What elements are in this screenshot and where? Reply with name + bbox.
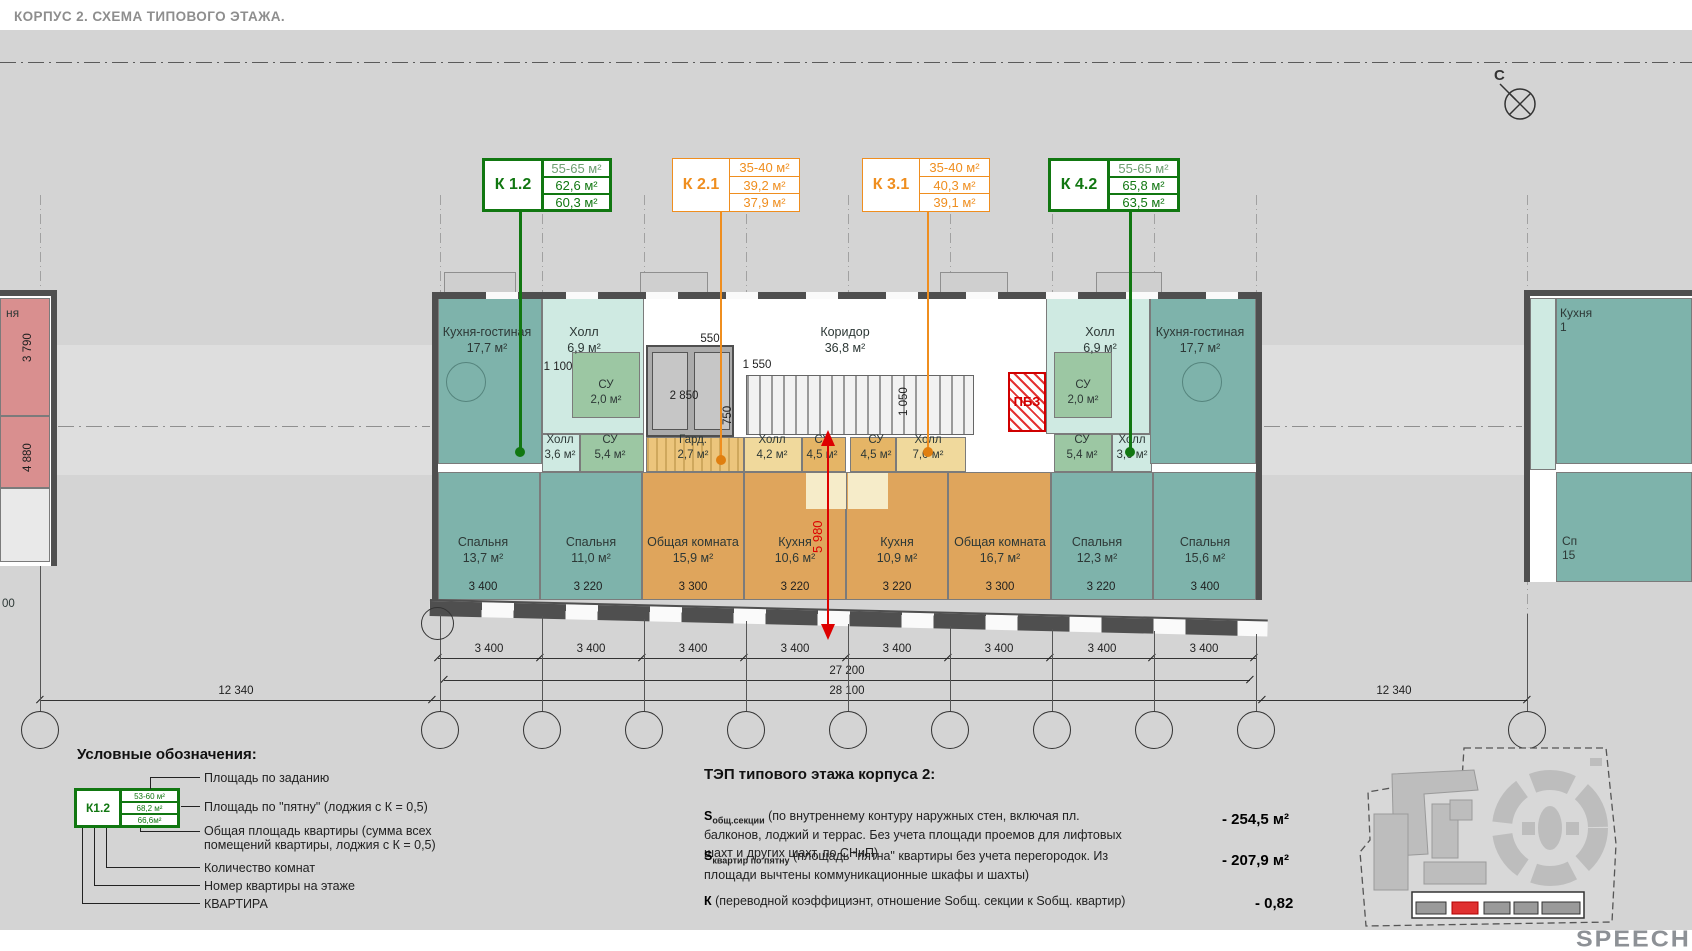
legend-connector bbox=[150, 777, 200, 778]
leader-dot-k21 bbox=[716, 455, 726, 465]
dim-room-width: 3 220 bbox=[883, 581, 912, 593]
apartment-tag-k21: К 2.1 35-40 м² 39,2 м² 37,9 м² bbox=[672, 158, 800, 212]
dim-hall-door: 1 100 bbox=[544, 361, 573, 373]
north-label: С bbox=[1494, 67, 1505, 84]
grid-connector bbox=[848, 624, 849, 711]
room-label: СУ5,4 м² bbox=[1067, 433, 1098, 463]
partial-room-label: ня bbox=[6, 306, 19, 320]
leader-dot-k31 bbox=[923, 447, 933, 457]
top-facade-windows bbox=[438, 292, 1256, 299]
room-label: СУ2,0 м² bbox=[1068, 378, 1099, 408]
room-label: Общая комната16,7 м² bbox=[954, 534, 1046, 567]
room-label: СУ2,0 м² bbox=[591, 378, 622, 408]
grid-connector bbox=[542, 616, 543, 711]
tep-heading: ТЭП типового этажа корпуса 2: bbox=[704, 766, 935, 783]
legend-connector bbox=[140, 831, 200, 832]
dim-bay: 3 400 bbox=[1190, 643, 1219, 655]
room-label: Холл3,6 м² bbox=[545, 433, 576, 463]
grid-bubble bbox=[1135, 711, 1173, 749]
balcony bbox=[940, 272, 1008, 294]
leader-k42 bbox=[1129, 212, 1132, 450]
legend-connector bbox=[94, 828, 95, 886]
section-arrow-up bbox=[821, 430, 835, 446]
tep-value: - 0,82 bbox=[1255, 895, 1293, 912]
dimline-total-outer bbox=[432, 700, 1262, 701]
grid-bubble bbox=[829, 711, 867, 749]
section-line bbox=[827, 445, 829, 625]
balcony bbox=[640, 272, 708, 294]
dim-room-width: 3 220 bbox=[781, 581, 810, 593]
dim-left-cut: 00 bbox=[2, 598, 15, 610]
grid-bubble bbox=[1033, 711, 1071, 749]
room-label: Спальня11,0 м² bbox=[566, 534, 616, 567]
dim-lift-depth: 750 bbox=[722, 406, 734, 425]
dim-bay: 3 400 bbox=[679, 643, 708, 655]
speech-logo: SPEECH bbox=[1576, 926, 1691, 951]
dim-total-outer: 28 100 bbox=[829, 685, 864, 697]
drawing-canvas: КОРПУС 2. СХЕМА ТИПОВОГО ЭТАЖА. С bbox=[0, 0, 1692, 951]
legend-connector bbox=[94, 885, 200, 886]
room-label: Кухня10,9 м² bbox=[877, 534, 918, 567]
bottom-margin bbox=[0, 930, 1692, 951]
kitchen-niche bbox=[806, 473, 846, 509]
grid-connector bbox=[1256, 634, 1257, 711]
legend-connector bbox=[150, 777, 151, 789]
dim-lift: 2 850 bbox=[670, 390, 699, 402]
dim-bay: 3 400 bbox=[475, 643, 504, 655]
partial-room-left bbox=[0, 488, 50, 562]
grid-bubble bbox=[931, 711, 969, 749]
tep-value: - 207,9 м² bbox=[1222, 852, 1289, 869]
dim-room-width: 3 300 bbox=[679, 581, 708, 593]
grid-connector bbox=[1527, 614, 1528, 711]
room-label: Общая комната15,9 м² bbox=[647, 534, 739, 567]
room-label: Холл6,9 м² bbox=[567, 324, 601, 357]
leader-dot-k42 bbox=[1125, 447, 1135, 457]
section-arrow-down bbox=[821, 624, 835, 640]
room-label: Спальня12,3 м² bbox=[1072, 534, 1122, 567]
dimline-left-gap bbox=[40, 700, 432, 701]
balcony bbox=[444, 272, 516, 294]
tep-row: Sквартир по пятну (площадь "пятна" кварт… bbox=[704, 848, 1134, 885]
dim-total-inner: 27 200 bbox=[829, 665, 864, 677]
dimline-right-gap bbox=[1262, 700, 1527, 701]
dimline-bays bbox=[438, 658, 1256, 659]
grid-bubble bbox=[1237, 711, 1275, 749]
legend-heading: Условные обозначения: bbox=[77, 746, 257, 763]
dim-room-width: 3 220 bbox=[1087, 581, 1116, 593]
room-label: Холл4,2 м² bbox=[757, 433, 788, 463]
legend-item: КВАРТИРА bbox=[204, 897, 268, 911]
grid-bubble bbox=[21, 711, 59, 749]
dim-tick bbox=[1246, 676, 1254, 684]
legend-item: Площадь по "пятну" (лоджия с К = 0,5) bbox=[204, 800, 428, 814]
grid-connector bbox=[950, 626, 951, 711]
kitchen-niche bbox=[848, 473, 888, 509]
legend-connector bbox=[181, 806, 200, 807]
page-title: КОРПУС 2. СХЕМА ТИПОВОГО ЭТАЖА. bbox=[14, 9, 285, 24]
room-label: Кухня-гостиная17,7 м² bbox=[1156, 324, 1244, 357]
room-label: Гард.2,7 м² bbox=[678, 433, 709, 463]
tep-row: К (переводной коэффициэнт, отношение Sоб… bbox=[704, 893, 1134, 912]
legend-item: Общая площадь квартиры (сумма всех помещ… bbox=[204, 824, 454, 852]
dim-stair-width: 1 550 bbox=[743, 359, 772, 371]
north-arrow-icon: С bbox=[1478, 62, 1548, 132]
tep-value: - 254,5 м² bbox=[1222, 811, 1289, 828]
dim-right-gap: 12 340 bbox=[1376, 685, 1411, 697]
gridline-vertical bbox=[848, 195, 849, 292]
room-label: Кухня-гостиная17,7 м² bbox=[443, 324, 531, 357]
grid-bubble bbox=[727, 711, 765, 749]
room-label-pbz: ПБЗ bbox=[1014, 394, 1041, 409]
room-label: СУ5,4 м² bbox=[595, 433, 626, 463]
dim-bay: 3 400 bbox=[577, 643, 606, 655]
staircase bbox=[746, 375, 974, 435]
legend-connector bbox=[82, 903, 200, 904]
leader-k21 bbox=[720, 212, 722, 458]
legend-item: Номер квартиры на этаже bbox=[204, 879, 355, 893]
grid-connector bbox=[644, 619, 645, 711]
grid-bubble bbox=[523, 711, 561, 749]
partial-room-label: Сп15 bbox=[1562, 534, 1577, 562]
dim-bay: 3 400 bbox=[985, 643, 1014, 655]
room-label: Коридор36,8 м² bbox=[820, 324, 869, 357]
grid-bubble bbox=[421, 607, 454, 640]
room-label: Холл6,9 м² bbox=[1083, 324, 1117, 357]
leader-dot-k12 bbox=[515, 447, 525, 457]
dim-bay: 3 400 bbox=[1088, 643, 1117, 655]
site-plan-minimap bbox=[1354, 744, 1626, 932]
dim-section-red: 5 980 bbox=[810, 520, 825, 553]
grid-connector bbox=[1154, 631, 1155, 711]
road-centerline-left bbox=[58, 426, 430, 427]
legend-connector bbox=[106, 867, 200, 868]
dim-left-v2: 4 880 bbox=[22, 443, 34, 472]
grid-connector bbox=[1052, 629, 1053, 711]
apartment-tag-k31: К 3.1 35-40 м² 40,3 м² 39,1 м² bbox=[862, 158, 990, 212]
gridline-horizontal bbox=[0, 62, 1692, 63]
leader-k12 bbox=[519, 212, 522, 450]
legend-sample-tag: К1.2 53-60 м² 68,2 м² 66,6м² bbox=[74, 788, 180, 828]
legend-connector bbox=[82, 828, 83, 904]
gridline-vertical bbox=[1256, 195, 1257, 292]
leader-k31 bbox=[927, 212, 929, 450]
dim-room-width: 3 400 bbox=[469, 581, 498, 593]
round-table bbox=[446, 362, 486, 402]
dim-bay: 3 400 bbox=[781, 643, 810, 655]
dim-left-gap: 12 340 bbox=[218, 685, 253, 697]
partial-bedroom-right bbox=[1556, 472, 1692, 582]
apartment-tag-k12: К 1.2 55-65 м² 62,6 м² 60,3 м² bbox=[482, 158, 612, 212]
dim-left-v1: 3 790 bbox=[22, 333, 34, 362]
dim-room-width: 3 220 bbox=[574, 581, 603, 593]
legend-item: Количество комнат bbox=[204, 861, 315, 875]
room-label: Спальня15,6 м² bbox=[1180, 534, 1230, 567]
grid-bubble bbox=[421, 711, 459, 749]
dim-door: 550 bbox=[700, 333, 719, 345]
road-centerline-right bbox=[1264, 426, 1522, 427]
dimline-total-inner bbox=[444, 680, 1250, 681]
dim-stair-gap: 1 050 bbox=[898, 387, 910, 416]
partial-hall-right bbox=[1530, 298, 1556, 470]
dim-bay: 3 400 bbox=[883, 643, 912, 655]
legend-connector bbox=[106, 828, 107, 868]
gridline-vertical bbox=[440, 195, 441, 292]
dim-room-width: 3 400 bbox=[1191, 581, 1220, 593]
room-label: Спальня13,7 м² bbox=[458, 534, 508, 567]
dim-room-width: 3 300 bbox=[986, 581, 1015, 593]
grid-bubble bbox=[625, 711, 663, 749]
grid-connector bbox=[746, 621, 747, 711]
legend-item: Площадь по заданию bbox=[204, 771, 329, 785]
partial-room-label: Кухня1 bbox=[1560, 306, 1592, 334]
round-table bbox=[1182, 362, 1222, 402]
room-label: СУ4,5 м² bbox=[861, 433, 892, 463]
apartment-tag-k42: К 4.2 55-65 м² 65,8 м² 63,5 м² bbox=[1048, 158, 1180, 212]
